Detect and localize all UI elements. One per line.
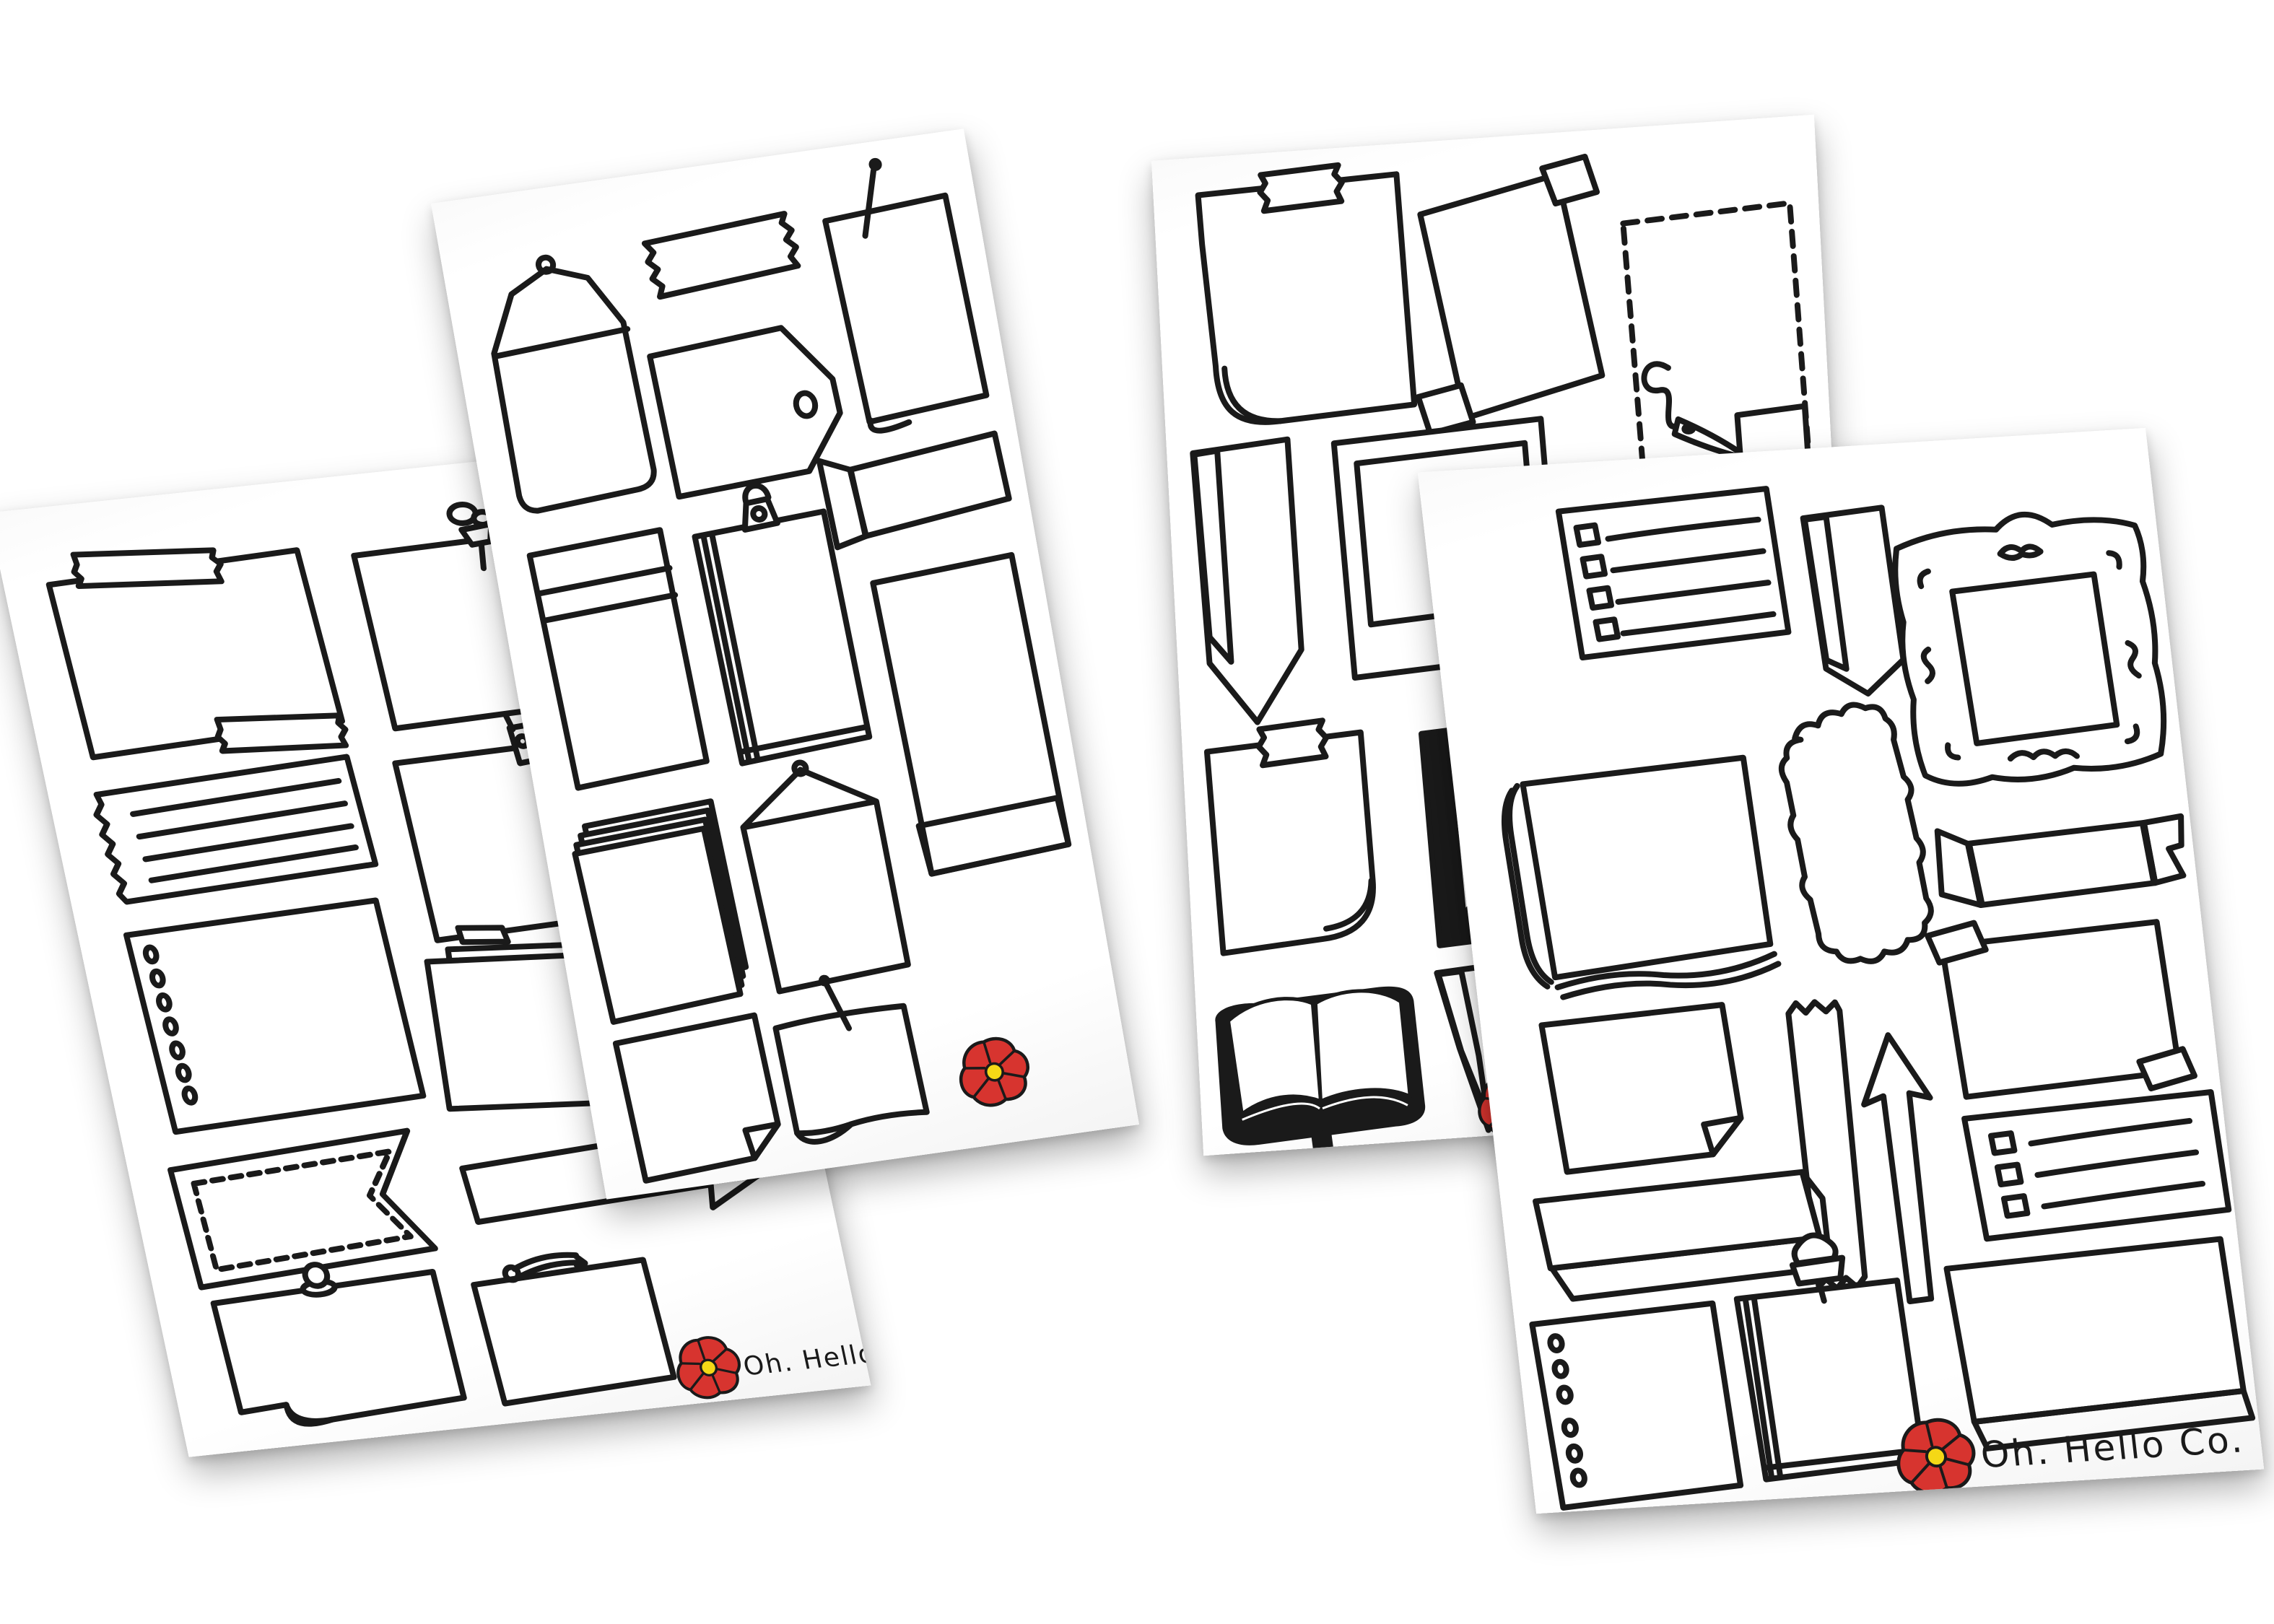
folded-ribbon-banner-doodle — [819, 433, 1013, 548]
hole-punched-page-doodle — [125, 900, 426, 1133]
torn-lined-paper-strip-doodle — [90, 756, 378, 903]
forked-ribbon-banner-doodle — [1935, 816, 2190, 907]
checklist-card-doodle — [1557, 489, 1790, 658]
brand-wordmark: Oh. Hello Co. — [741, 1332, 871, 1381]
stitched-swallowtail-flag-doodle — [167, 1130, 438, 1288]
long-pin-curled-note-doodle — [816, 149, 990, 434]
banded-pocket-folder-doodle — [528, 529, 708, 789]
hatched-bottom-panel-doodle — [871, 554, 1070, 875]
taped-note-with-curl-doodle — [1206, 717, 1376, 953]
flap-envelope-doodle — [733, 753, 910, 992]
taped-curl-note-doodle — [1197, 161, 1415, 427]
hatched-3d-bar-doodle — [1534, 1171, 1837, 1301]
dog-ear-square-note-doodle — [614, 1015, 785, 1182]
corner-taped-note-doodle — [1927, 911, 2196, 1101]
safety-pin-note-doodle — [469, 1246, 676, 1404]
open-book-doodle — [1214, 985, 1427, 1156]
hatched-chevron-banner-doodle — [1193, 439, 1305, 725]
hatched-shadow-square-doodle — [1945, 1239, 2254, 1450]
sticker-sheet-4: Oh. Hello Co. — [1418, 428, 2264, 1514]
pushpin-note-pad-doodle — [1730, 1230, 1925, 1480]
layered-notebook-doodle — [1498, 757, 1780, 1000]
hole-punched-page-doodle — [1531, 1303, 1742, 1509]
brand-wordmark: Oh. Hello Co. — [1979, 1418, 2247, 1476]
hatched-bookmark-chevron-doodle — [1803, 507, 1907, 697]
double-taped-tilted-note-doodle — [1406, 156, 1609, 435]
dog-ear-note-doodle — [1541, 1005, 1746, 1173]
stacked-papers-doodle — [569, 800, 752, 1023]
sheet-4-drawing: Oh. Hello Co. — [1418, 428, 2264, 1514]
washi-taped-note-doodle — [43, 531, 349, 772]
sheet-1-logo: Oh. Hello Co. — [671, 1315, 871, 1400]
washi-tape-strip-doodle — [643, 213, 802, 297]
loop-clasp-envelope-doodle — [479, 248, 658, 512]
sheet-4-logo: Oh. Hello Co. — [1894, 1402, 2248, 1496]
ornate-scroll-frame-doodle — [1888, 507, 2170, 786]
scalloped-label-doodle — [1774, 702, 1936, 966]
up-arrow-outline-doodle — [1857, 1033, 1953, 1303]
checklist-card-large-doodle — [1963, 1092, 2230, 1239]
sheet-2-logo — [954, 1035, 1034, 1109]
product-photo-canvas: Oh. Hello Co. — [0, 0, 2274, 1624]
